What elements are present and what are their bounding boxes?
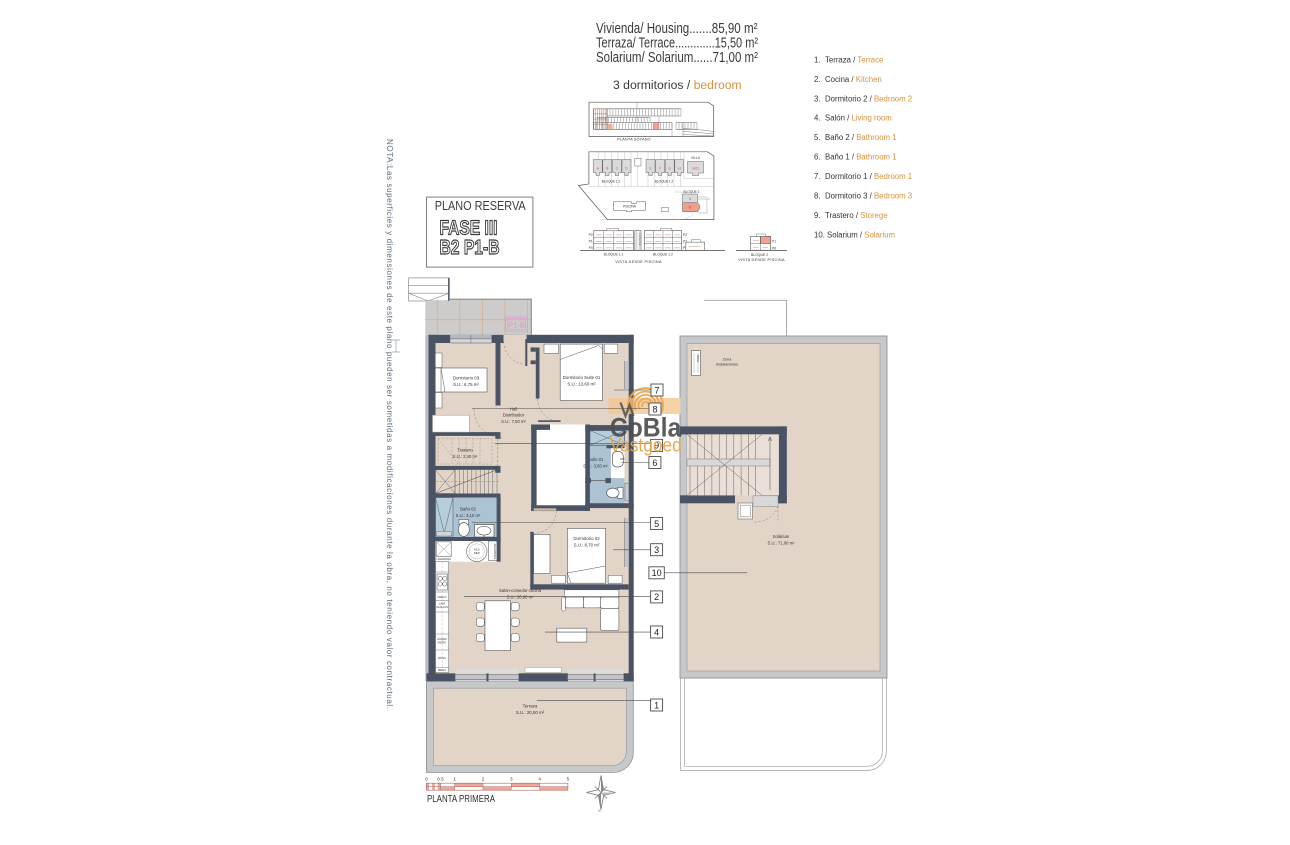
svg-text:Dormitorio 03: Dormitorio 03 bbox=[453, 376, 480, 381]
svg-text:Salón / Living room: Salón / Living room bbox=[825, 114, 892, 123]
svg-text:P1-B: P1-B bbox=[508, 321, 525, 330]
svg-text:Dormitorio 3 / Bedroom 3: Dormitorio 3 / Bedroom 3 bbox=[825, 192, 912, 201]
svg-text:BLOQUE 1.2: BLOQUE 1.2 bbox=[653, 253, 673, 257]
svg-text:0: 0 bbox=[425, 777, 428, 782]
svg-text:0.5: 0.5 bbox=[437, 777, 444, 782]
svg-text:S.U.: 71,00 m²: S.U.: 71,00 m² bbox=[768, 541, 796, 546]
svg-text:G: G bbox=[668, 167, 671, 171]
svg-text:1.: 1. bbox=[814, 55, 821, 64]
svg-text:VISTA DESDE PISCINA: VISTA DESDE PISCINA bbox=[738, 258, 785, 262]
svg-text:S.U.: 6,75 m²: S.U.: 6,75 m² bbox=[453, 382, 479, 387]
svg-text:4: 4 bbox=[538, 777, 541, 782]
svg-text:BLOQUE 2: BLOQUE 2 bbox=[751, 253, 768, 257]
svg-text:Baño 02: Baño 02 bbox=[460, 507, 476, 512]
svg-text:BLOQUE 2: BLOQUE 2 bbox=[684, 190, 700, 194]
svg-text:P1: P1 bbox=[589, 240, 593, 244]
svg-text:MICRO: MICRO bbox=[438, 641, 447, 645]
svg-text:Trastero / Storege: Trastero / Storege bbox=[825, 211, 888, 220]
svg-text:FRIGO: FRIGO bbox=[438, 656, 446, 660]
svg-text:6: 6 bbox=[652, 458, 657, 468]
svg-text:VISTA DESDE PISCINA: VISTA DESDE PISCINA bbox=[615, 260, 662, 264]
svg-text:B: B bbox=[689, 206, 691, 210]
svg-text:9.: 9. bbox=[814, 211, 821, 220]
svg-text:Zona: Zona bbox=[723, 358, 733, 362]
svg-text:PLANO RESERVA: PLANO RESERVA bbox=[435, 198, 526, 213]
svg-text:S.U.: 8,70 m²: S.U.: 8,70 m² bbox=[574, 543, 600, 548]
svg-text:Trastero: Trastero bbox=[457, 448, 473, 453]
svg-text:1: 1 bbox=[453, 777, 456, 782]
svg-text:S.U.: 20,50 m²: S.U.: 20,50 m² bbox=[516, 710, 545, 715]
svg-text:ZONA: ZONA bbox=[696, 355, 700, 362]
svg-text:BLOQUE 1.1: BLOQUE 1.1 bbox=[602, 180, 621, 184]
svg-text:7: 7 bbox=[654, 385, 659, 395]
svg-text:4.: 4. bbox=[814, 114, 821, 123]
svg-text:Instalaciones: Instalaciones bbox=[716, 363, 738, 367]
svg-text:Terraza / Terrace: Terraza / Terrace bbox=[825, 55, 883, 64]
svg-text:6.: 6. bbox=[814, 153, 821, 162]
svg-text:PISCINA: PISCINA bbox=[623, 205, 637, 209]
svg-text:VILLA: VILLA bbox=[691, 156, 701, 160]
svg-text:Vastgoed: Vastgoed bbox=[610, 435, 682, 456]
svg-text:Solarium / Solarium: Solarium / Solarium bbox=[827, 230, 895, 239]
svg-text:3: 3 bbox=[654, 545, 659, 555]
svg-text:BLOQUE 1.1: BLOQUE 1.1 bbox=[604, 253, 624, 257]
svg-text:5.: 5. bbox=[814, 133, 821, 142]
svg-text:2: 2 bbox=[654, 592, 659, 602]
svg-text:P0: P0 bbox=[772, 246, 776, 250]
svg-text:VAJILLAS: VAJILLAS bbox=[436, 605, 448, 609]
svg-text:Dormitorio Suite 01: Dormitorio Suite 01 bbox=[563, 375, 601, 380]
svg-text:S.U.: 7,50 m²: S.U.: 7,50 m² bbox=[501, 419, 526, 424]
svg-text:5: 5 bbox=[654, 519, 659, 529]
svg-text:S.U.: 13,60 m²: S.U.: 13,60 m² bbox=[567, 382, 596, 387]
svg-text:2.: 2. bbox=[814, 75, 821, 84]
svg-text:5: 5 bbox=[567, 777, 570, 782]
svg-text:S.U.: 3,10 m²: S.U.: 3,10 m² bbox=[456, 513, 481, 518]
svg-text:Distribuidor: Distribuidor bbox=[503, 413, 525, 418]
svg-text:4: 4 bbox=[654, 627, 659, 637]
svg-text:2: 2 bbox=[482, 777, 485, 782]
svg-text:3.: 3. bbox=[814, 94, 821, 103]
svg-text:Baño 2 / Bathroom 1: Baño 2 / Bathroom 1 bbox=[825, 133, 897, 142]
svg-text:P1: P1 bbox=[772, 240, 776, 244]
svg-text:8.: 8. bbox=[814, 192, 821, 201]
svg-text:P2: P2 bbox=[683, 233, 687, 237]
svg-text:3: 3 bbox=[510, 777, 513, 782]
svg-text:Dormitorio 2 / Bedroom 2: Dormitorio 2 / Bedroom 2 bbox=[825, 94, 912, 103]
svg-text:NOTA:Las superficies y dimensi: NOTA:Las superficies y dimensiones de es… bbox=[385, 139, 394, 709]
svg-text:P2: P2 bbox=[589, 233, 593, 237]
svg-text:Cocina / Kitchen: Cocina / Kitchen bbox=[825, 75, 882, 84]
svg-text:LAVADORA: LAVADORA bbox=[436, 557, 451, 561]
svg-text:Baño 1 / Bathroom 1: Baño 1 / Bathroom 1 bbox=[825, 153, 897, 162]
svg-text:Dormitorio 02: Dormitorio 02 bbox=[573, 536, 600, 541]
svg-text:Terraza: Terraza bbox=[523, 704, 538, 709]
svg-text:BLOQUE 1.2: BLOQUE 1.2 bbox=[655, 180, 674, 184]
svg-text:PLANTA SÓTANO: PLANTA SÓTANO bbox=[617, 137, 651, 142]
svg-text:Baño 01: Baño 01 bbox=[588, 457, 604, 462]
svg-text:Solárium: Solárium bbox=[773, 534, 790, 539]
svg-text:7.: 7. bbox=[814, 172, 821, 181]
svg-text:Hall: Hall bbox=[510, 407, 517, 412]
svg-text:DEP: DEP bbox=[474, 551, 480, 555]
svg-text:xx01: xx01 bbox=[692, 167, 699, 171]
svg-text:Dormitorio 1 / Bedroom 1: Dormitorio 1 / Bedroom 1 bbox=[825, 172, 912, 181]
svg-text:RIEGO: RIEGO bbox=[438, 668, 446, 672]
svg-text:P0: P0 bbox=[589, 246, 593, 250]
svg-text:1: 1 bbox=[654, 700, 659, 710]
svg-text:Solarium/ Solarium......71,00: Solarium/ Solarium......71,00 m² bbox=[596, 50, 758, 66]
svg-text:10.: 10. bbox=[814, 230, 825, 239]
svg-text:F: F bbox=[659, 167, 661, 171]
svg-text:3 dormitorios / bedroom: 3 dormitorios / bedroom bbox=[613, 78, 742, 92]
svg-text:B2 P1-B: B2 P1-B bbox=[440, 236, 500, 259]
svg-text:PLANTA PRIMERA: PLANTA PRIMERA bbox=[427, 794, 495, 805]
svg-text:FREGO: FREGO bbox=[437, 595, 446, 599]
svg-text:10: 10 bbox=[652, 568, 662, 578]
svg-text:HORNO: HORNO bbox=[437, 637, 447, 641]
svg-text:S.U.: 2,40 m²: S.U.: 2,40 m² bbox=[453, 454, 478, 459]
svg-text:ESCALERA: ESCALERA bbox=[638, 234, 641, 246]
